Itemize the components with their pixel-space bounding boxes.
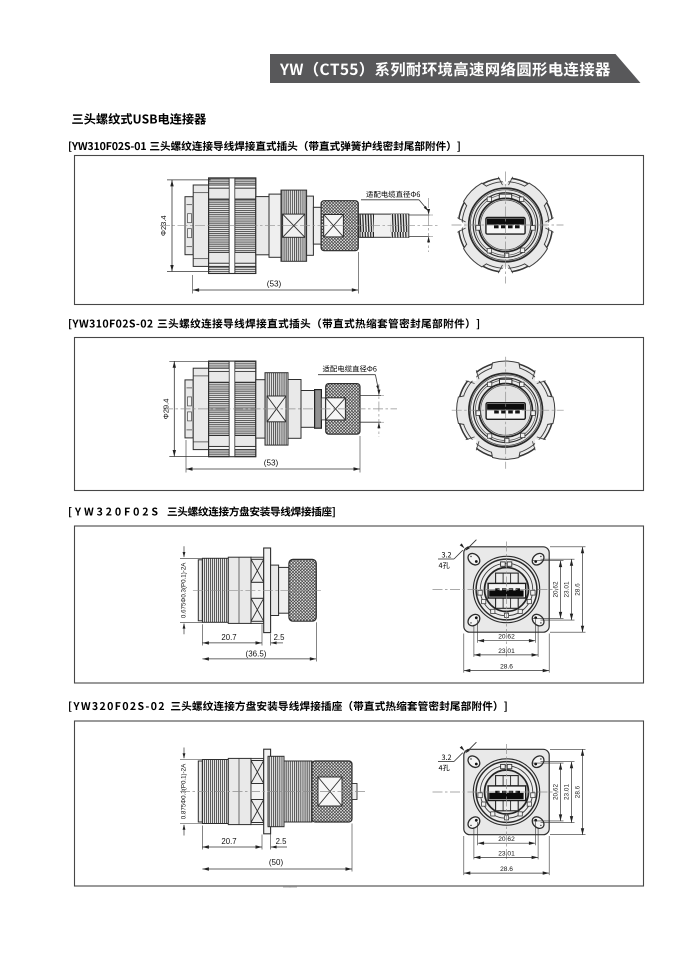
- svg-text:23.01: 23.01: [564, 784, 571, 800]
- svg-text:20 62: 20 62: [498, 836, 515, 843]
- svg-text:28.6: 28.6: [575, 785, 582, 798]
- svg-text:(36.5): (36.5): [246, 649, 267, 658]
- svg-text:20.7: 20.7: [221, 633, 236, 642]
- svg-text:(50): (50): [269, 858, 284, 867]
- svg-text:20 62: 20 62: [498, 634, 515, 641]
- svg-text:‧‧: ‧‧: [288, 885, 292, 891]
- svg-text:20.62: 20.62: [553, 581, 560, 597]
- svg-text:(53): (53): [264, 459, 279, 468]
- svg-text:23.01: 23.01: [564, 581, 571, 597]
- svg-text:0.675Φ0.3(P0.1)-2A: 0.675Φ0.3(P0.1)-2A: [181, 562, 188, 618]
- svg-text:20.7: 20.7: [221, 837, 236, 846]
- svg-text:28.6: 28.6: [575, 583, 582, 596]
- svg-text:23.01: 23.01: [498, 850, 515, 857]
- svg-text:20.62: 20.62: [553, 784, 560, 800]
- svg-text:2.5: 2.5: [274, 633, 286, 642]
- svg-text:28.6: 28.6: [500, 866, 513, 873]
- svg-text:28.6: 28.6: [500, 664, 513, 671]
- svg-text:23.01: 23.01: [498, 648, 515, 655]
- svg-text:0.875Φ0.3(P0.1)-2A: 0.875Φ0.3(P0.1)-2A: [181, 763, 188, 819]
- svg-text:(53): (53): [267, 280, 282, 289]
- svg-text:2.5: 2.5: [276, 837, 288, 846]
